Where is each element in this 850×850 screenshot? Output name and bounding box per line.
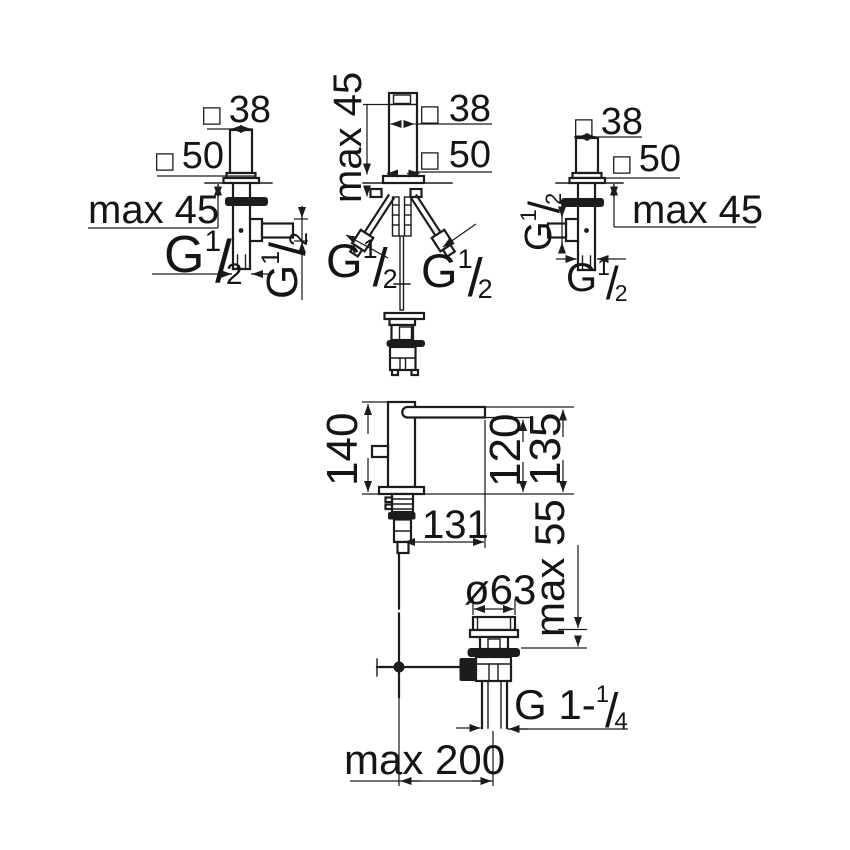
reach-131-label: 131 [422, 503, 489, 547]
technical-drawing-page: □38 □50 max 45 G1/2 G1/2 [0, 0, 850, 850]
g-half-hose-left-label: G1/2 [326, 234, 398, 298]
waste-body [476, 657, 511, 681]
faucet-dimension-diagram: □38 □50 max 45 G1/2 G1/2 [0, 0, 850, 850]
waste-cap [473, 617, 515, 630]
base-plate [224, 178, 260, 183]
max-45-label: max 45 [632, 188, 763, 232]
mixer-body [389, 93, 417, 176]
square-50-label: □50 [154, 135, 224, 177]
g-half-hose-right-label: G1/2 [421, 244, 493, 308]
square-50-label: □50 [419, 134, 491, 176]
g-half-outlet-label: G1/2 [516, 193, 569, 251]
max-200-label: max 200 [344, 736, 505, 783]
valve-body [230, 130, 252, 173]
square-38-label: □38 [573, 101, 643, 143]
base-plate [570, 178, 606, 183]
waste-diameter-label: ø63 [464, 566, 536, 613]
installed-view: 140 120 135 131 max 55 ø63 G 1-1/4 max 2… [318, 402, 628, 786]
waste-flange [468, 648, 521, 657]
lever-nub [372, 446, 388, 457]
right-side-view: □38 □50 max 45 G1/2 G1/2 [516, 101, 763, 309]
pop-up-rod [400, 236, 404, 310]
g-half-outlet-label: G1/2 [257, 232, 316, 299]
square-50-label: □50 [611, 138, 681, 180]
locknut [388, 512, 416, 520]
valve-body [576, 138, 598, 173]
pop-up-waste-front [385, 313, 426, 375]
height-140-label: 140 [318, 413, 367, 486]
g-half-label: G1/2 [164, 225, 243, 295]
spout [402, 407, 485, 418]
threaded-studs [393, 197, 412, 236]
waste-drain-outline [460, 617, 521, 728]
height-135-label: 135 [521, 413, 570, 486]
locknut [225, 197, 268, 206]
square-38-label: □38 [201, 89, 271, 131]
base-plate [383, 176, 424, 183]
max-45-label: max 45 [326, 72, 370, 203]
left-side-view: □38 □50 max 45 G1/2 G1/2 [88, 89, 316, 300]
front-view: max 45 □38 □50 G1/2 G1/2 [326, 72, 493, 375]
linkage-clamp-knob [460, 658, 477, 681]
square-38-label: □38 [419, 88, 491, 130]
g-half-label: G1/2 [566, 254, 628, 309]
